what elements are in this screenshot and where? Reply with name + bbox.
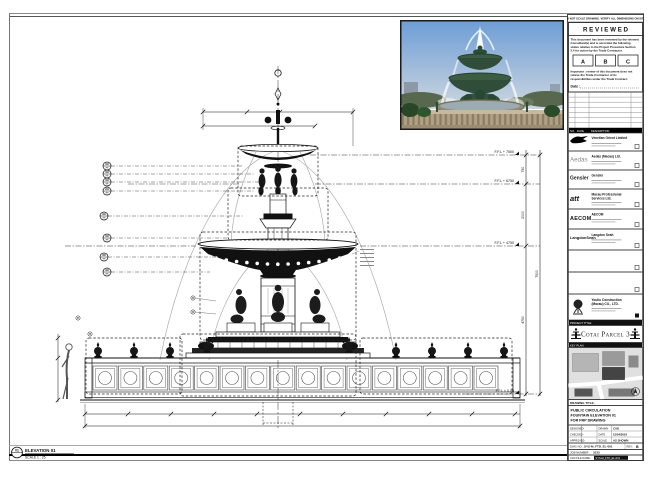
left-dimension-chain bbox=[56, 334, 60, 402]
svg-text:AS SHOWN: AS SHOWN bbox=[613, 438, 628, 442]
rev-col-no: NO. bbox=[570, 129, 575, 133]
job-label: JOB NUMBER : bbox=[570, 451, 590, 455]
svg-text:Gensler: Gensler bbox=[592, 174, 605, 178]
svg-text:PUBLIC CIRCULATION: PUBLIC CIRCULATION bbox=[571, 409, 611, 413]
mould-extent-outlines bbox=[86, 146, 512, 396]
cad-label: CAD FILE NAME : bbox=[570, 456, 592, 460]
project-name: Cotai Parcel 3 bbox=[581, 331, 630, 339]
detail-bubble-number: 01 bbox=[15, 449, 19, 453]
key-plan-section: KEY PLAN bbox=[569, 343, 643, 400]
cherub-statues bbox=[258, 166, 297, 195]
svg-text:-: - bbox=[583, 438, 584, 442]
dim-value: 4750 bbox=[521, 316, 525, 324]
svg-text:Venetian Orient Limited: Venetian Orient Limited bbox=[592, 136, 628, 140]
aecom-logo: AECOM bbox=[570, 216, 592, 222]
gensler-logo: Gensler bbox=[570, 176, 589, 182]
dim-value: 750 bbox=[521, 167, 525, 173]
svg-text:12/04/2016: 12/04/2016 bbox=[613, 432, 627, 436]
vertical-dimension-chains: 750 2000 4750 7500 bbox=[521, 150, 542, 396]
svg-text:-: - bbox=[583, 426, 584, 430]
level-label: F.F.L + 6750 bbox=[494, 179, 514, 183]
elevation-scale: SCALE 1 : 25 bbox=[25, 455, 46, 459]
elevation-title: ELEVATION 01 bbox=[25, 448, 56, 453]
svg-text:CHECKED: CHECKED bbox=[570, 432, 583, 436]
dim-value: 7500 bbox=[535, 270, 539, 278]
stamp-option-b: B bbox=[604, 60, 608, 66]
cad-value: SYS-M_FTD_EL-001 bbox=[596, 456, 621, 460]
svg-text:FOR FRP DRAWING: FOR FRP DRAWING bbox=[571, 419, 606, 423]
middle-bowl bbox=[198, 239, 358, 279]
bottom-dimension-lines bbox=[83, 402, 522, 428]
level-label: F.F.L + 7500 bbox=[494, 150, 514, 154]
sheet-border-top-outer bbox=[9, 13, 644, 14]
statue-plinths bbox=[227, 323, 329, 332]
fountain-photo bbox=[400, 20, 564, 130]
dim-value: 2000 bbox=[521, 211, 525, 219]
stamp-title: R E V I E W E D bbox=[583, 27, 629, 34]
svg-text:responsibilities under the Tra: responsibilities under the Trade Contrac… bbox=[571, 77, 628, 81]
basin-panels bbox=[93, 366, 498, 390]
svg-text:CAD: CAD bbox=[613, 426, 619, 430]
svg-text:SCALE: SCALE bbox=[599, 438, 608, 442]
part-note-stack bbox=[352, 249, 374, 266]
sheet-note: DO NOT SCALE DRAWING. VERIFY ALL DIMENSI… bbox=[567, 17, 644, 21]
svg-text:Langdon Seah: Langdon Seah bbox=[592, 233, 614, 237]
sheet-border-bottom bbox=[9, 460, 644, 461]
seated-statues bbox=[231, 285, 326, 324]
level-label: F.F.L ± 0.00 bbox=[496, 389, 514, 393]
rev-label: REV : bbox=[627, 445, 634, 449]
rev-col-date: DATE bbox=[577, 129, 584, 133]
rev-col-desc: DESCRIPTION bbox=[591, 129, 609, 133]
svg-text:DRAWN: DRAWN bbox=[599, 426, 609, 430]
dwg-label: DWG NO. : bbox=[570, 445, 584, 449]
stamp-option-a: A bbox=[581, 60, 585, 66]
drawing-sheet: { "strip_note": "DO NOT SCALE DRAWING. V… bbox=[0, 0, 650, 488]
svg-text:Services Ltd.: Services Ltd. bbox=[592, 197, 612, 201]
dwg-value: SYS-M_FTD_EL-001 bbox=[584, 445, 613, 449]
svg-text:(Macau) CO., LTD.: (Macau) CO., LTD. bbox=[592, 302, 619, 306]
level-label: F.F.L + 4750 bbox=[494, 241, 514, 245]
svg-text:FOUNTAIN ELEVATION 01: FOUNTAIN ELEVATION 01 bbox=[571, 414, 616, 418]
elevation-title-label: 01 ELEVATION 01 SCALE 1 : 25 bbox=[10, 446, 140, 460]
svg-text:DATE: DATE bbox=[599, 432, 606, 436]
aedas-logo: Aedas bbox=[570, 157, 588, 164]
keyplan-band-label: KEY PLAN bbox=[570, 343, 584, 347]
upper-shaft bbox=[260, 194, 296, 242]
svg-text:5.4 for action by the Trade Co: 5.4 for action by the Trade Contractor. bbox=[571, 49, 623, 53]
drawing-title-label: DRAWING TITLE: bbox=[570, 401, 595, 405]
svg-text:AECOM: AECOM bbox=[592, 213, 604, 217]
svg-text:-: - bbox=[583, 432, 584, 436]
key-plan-map bbox=[569, 348, 643, 400]
svg-text:DESIGNED: DESIGNED bbox=[570, 426, 584, 430]
mps-logo: att bbox=[570, 194, 580, 203]
contractor-logo bbox=[573, 300, 583, 315]
human-scale-figure bbox=[62, 344, 72, 399]
rev-value: B bbox=[636, 445, 639, 449]
title-block: DO NOT SCALE DRAWING. VERIFY ALL DIMENSI… bbox=[567, 14, 644, 461]
job-value: 3133 bbox=[593, 451, 600, 455]
stamp-option-c: C bbox=[626, 60, 630, 66]
svg-text:Aedas (Macau) Ltd.: Aedas (Macau) Ltd. bbox=[592, 155, 621, 159]
detail-bubble: 01 bbox=[12, 447, 23, 458]
stamp-date-label: Date : bbox=[571, 85, 581, 89]
project-band-label: PROJECT TITLE bbox=[570, 321, 591, 325]
